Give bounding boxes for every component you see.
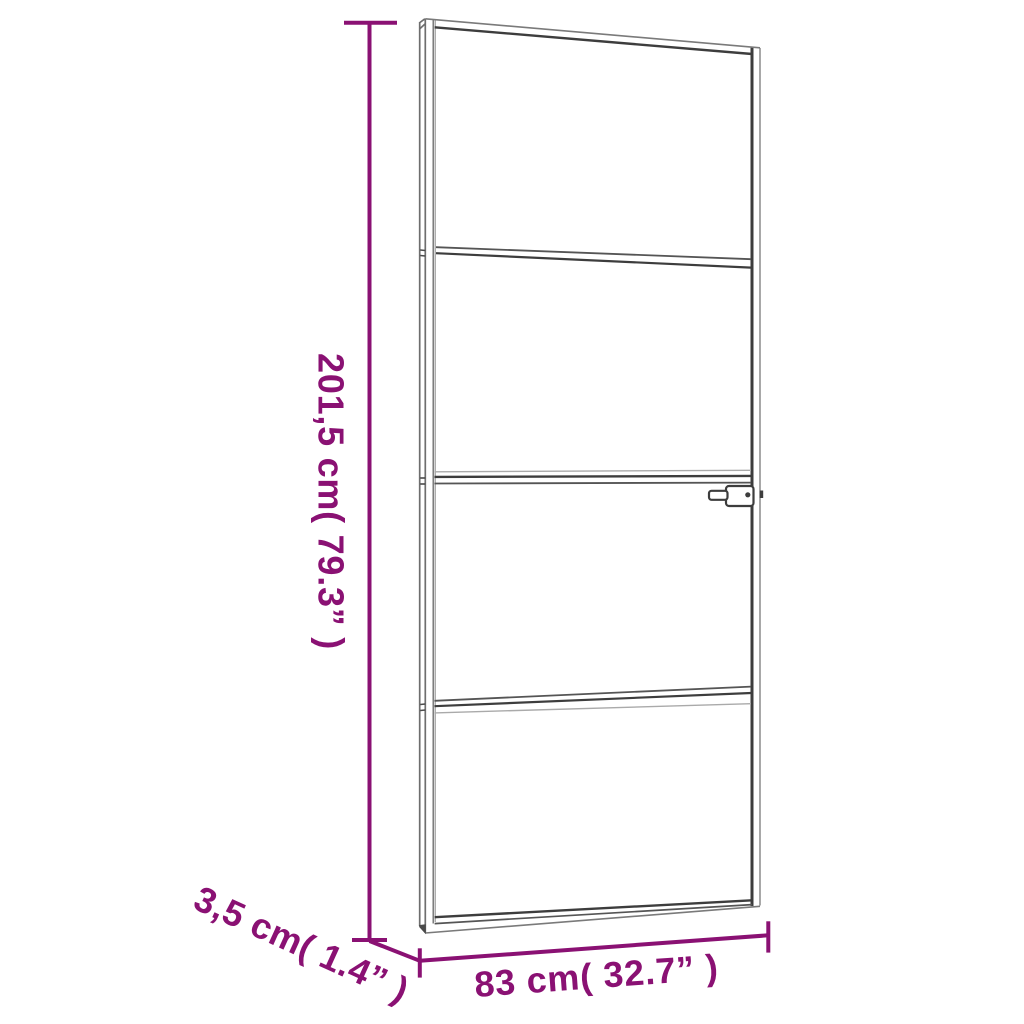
svg-text:201,5 cm( 79.3” ): 201,5 cm( 79.3” ) bbox=[311, 353, 352, 650]
